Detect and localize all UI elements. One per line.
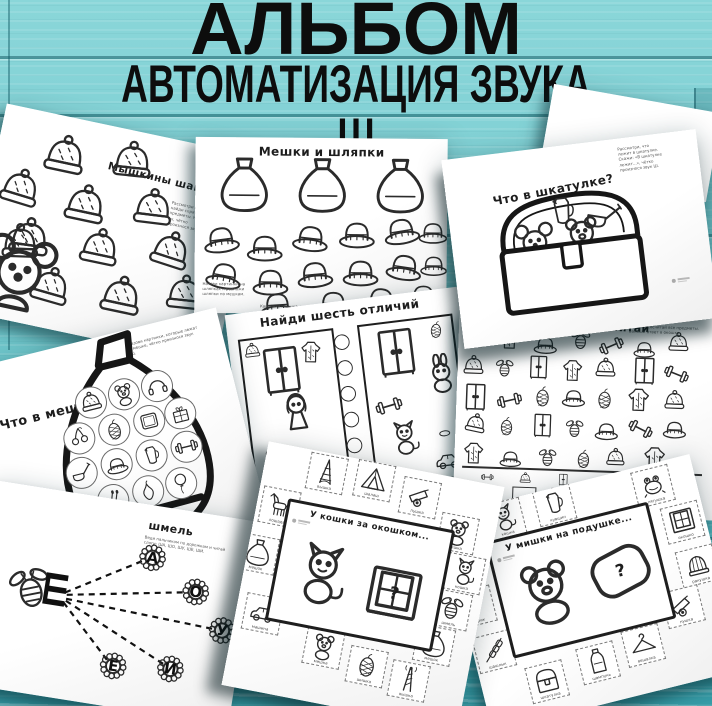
cone-icon xyxy=(100,415,129,444)
girl-icon xyxy=(272,387,321,436)
flower-letter: И xyxy=(151,649,190,688)
coat-icon xyxy=(460,440,487,467)
circle-item-jug xyxy=(132,436,171,475)
cat-icon xyxy=(385,418,425,458)
bear-illustration xyxy=(506,550,588,632)
circle-item-cone xyxy=(95,410,134,449)
frame-icon xyxy=(135,406,164,435)
bee-icon xyxy=(493,357,516,380)
bee-icon xyxy=(563,417,586,440)
beanie-icon xyxy=(93,269,150,326)
logo-icon xyxy=(292,518,297,523)
beanie-icon xyxy=(461,410,489,438)
circle-item-cherry xyxy=(60,419,99,458)
logo-icon xyxy=(672,279,676,283)
beanie-icon xyxy=(666,331,691,356)
gift-icon xyxy=(166,399,195,428)
headphones-icon xyxy=(142,372,171,401)
fedora-icon xyxy=(498,445,523,470)
coat-icon xyxy=(624,385,653,414)
publisher-logo xyxy=(292,518,310,525)
circle-item-gift xyxy=(161,394,200,433)
poster: АЛЬБОМ АВТОМАТИЗАЦИЯ ЗВУКА Ш Мышкины шап… xyxy=(0,0,712,706)
beanie-icon xyxy=(107,137,158,188)
cone-icon xyxy=(495,415,518,438)
card-shell: ракушка xyxy=(675,543,712,588)
beanie-icon xyxy=(107,137,158,188)
coat-icon xyxy=(559,357,586,384)
fedora-icon xyxy=(498,445,523,470)
beanie-icon xyxy=(72,222,127,277)
girl-icon xyxy=(272,387,321,436)
cone-icon xyxy=(530,384,555,409)
coat-icon xyxy=(298,339,324,365)
cone-icon xyxy=(592,386,617,411)
fedora-icon xyxy=(419,249,448,279)
flower-letter: А xyxy=(133,538,172,577)
flower-И: И xyxy=(151,649,190,688)
window-illustration: ? xyxy=(356,557,433,630)
beanie-icon xyxy=(93,269,150,326)
fedora-icon xyxy=(661,415,688,442)
wardrobe-icon xyxy=(525,354,552,381)
wardrobe-icon xyxy=(368,324,426,382)
fedora-icon xyxy=(661,415,688,442)
beanie-icon xyxy=(604,447,627,470)
sack-icon xyxy=(371,156,430,215)
fedora-icon xyxy=(102,450,131,479)
cone-icon xyxy=(572,448,595,471)
pillow-illustration: ? xyxy=(577,528,664,615)
dumbbell-icon xyxy=(494,385,525,416)
ladle-icon xyxy=(67,458,96,487)
card-tower: вышка xyxy=(386,659,430,703)
circle-item-fedora xyxy=(97,445,136,484)
pear-icon xyxy=(134,477,163,506)
cone-icon xyxy=(426,319,447,340)
coat-icon xyxy=(298,339,324,365)
wardrobe-icon xyxy=(529,412,556,439)
flower-letter: О xyxy=(176,573,215,612)
circle-icon xyxy=(341,410,361,430)
beanie-icon xyxy=(461,354,486,379)
circle-icon xyxy=(335,358,355,378)
cone-icon xyxy=(426,319,447,340)
flower-А: А xyxy=(133,538,172,577)
beanie-icon xyxy=(593,356,618,381)
cat-icon xyxy=(385,418,425,458)
fedora-icon xyxy=(560,383,587,410)
dumbbell-icon xyxy=(480,470,493,483)
beanie-icon xyxy=(518,472,531,485)
circle-item-frame xyxy=(130,402,169,441)
worksheet-chto-v-shkatulke: Что в шкатулке? Рассмотри, что лежит в ш… xyxy=(441,129,712,349)
worksheet-u-koshki: вышкашалашпушкалошадьмешокмашинамишкакош… xyxy=(222,441,505,706)
sack-icon xyxy=(215,155,274,214)
sack-icon xyxy=(215,155,274,214)
card-cannon: пушка xyxy=(398,476,442,520)
beanie-icon xyxy=(461,354,486,379)
fedora-icon xyxy=(337,212,377,252)
card-cone: шишка xyxy=(344,645,388,689)
dumbbell-icon xyxy=(494,385,525,416)
circle-icon xyxy=(338,384,358,404)
beanie-icon xyxy=(604,447,627,470)
dumbbell-icon xyxy=(623,411,658,446)
fedora-icon xyxy=(419,249,448,279)
sack-icon xyxy=(293,156,352,215)
fedora-icon xyxy=(560,383,587,410)
circle-icon xyxy=(338,384,358,404)
game-panel: У кошки за окошком... ? xyxy=(265,498,456,652)
wardrobe-icon xyxy=(529,412,556,439)
circle-item-dumbbell xyxy=(167,427,206,466)
worksheet-meshki-i-shlyapki: Мешки и шляпки Назови картинки на шляпка… xyxy=(194,137,448,315)
dumbbell-icon xyxy=(172,432,201,461)
instruction-text: Назови картинки на шляпках и разложи шля… xyxy=(202,281,258,297)
instruction-text: Рассмотри, что лежит в шкатулке. Скажи: … xyxy=(617,141,664,172)
coat-icon xyxy=(460,440,487,467)
card-chest: шкатулка xyxy=(524,659,570,704)
bee-icon xyxy=(493,357,516,380)
wardrobe-icon xyxy=(629,356,660,387)
logo-icon xyxy=(497,558,502,563)
open-chest-illustration xyxy=(476,175,667,329)
beanie-icon xyxy=(461,410,489,438)
panel-items xyxy=(240,330,331,341)
dumbbell-icon xyxy=(660,357,694,391)
beanie-icon xyxy=(0,221,43,267)
dumbbell-icon xyxy=(371,388,406,423)
circle-item-bear xyxy=(105,375,144,414)
cone-icon xyxy=(572,448,595,471)
bee-icon xyxy=(563,417,586,440)
beanie-icon xyxy=(662,389,687,414)
flower-letter: Е xyxy=(94,647,133,686)
wardrobe-icon xyxy=(629,356,660,387)
card-frog: лягушка xyxy=(630,464,676,509)
beanie-icon xyxy=(666,331,691,356)
cherry-icon xyxy=(65,424,94,453)
flower-О: О xyxy=(176,573,215,612)
beanie-icon xyxy=(0,221,43,267)
bee-icon xyxy=(536,446,559,469)
flower-Е: Е xyxy=(94,647,133,686)
sack-icon xyxy=(371,156,430,215)
beanie-icon xyxy=(76,388,105,417)
publisher-logo xyxy=(672,277,690,283)
card-eiffel: вышка xyxy=(305,452,349,496)
wardrobe-icon xyxy=(368,324,426,382)
wardrobe-icon xyxy=(460,382,491,413)
cone-icon xyxy=(530,384,555,409)
circle-item-ladle xyxy=(62,453,101,492)
question-mark: ? xyxy=(577,528,664,615)
panel-items xyxy=(359,316,450,327)
bee-icon xyxy=(536,446,559,469)
coat-icon xyxy=(624,385,653,414)
circle-icon xyxy=(335,358,355,378)
card-bottle: шампунь xyxy=(575,640,621,685)
fedora-icon xyxy=(337,212,377,252)
beanie-icon xyxy=(593,356,618,381)
circle-icon xyxy=(344,435,364,455)
coat-icon xyxy=(559,357,586,384)
fedora-icon xyxy=(593,416,620,443)
circle-icon xyxy=(344,435,364,455)
card-window: окошко xyxy=(660,500,706,545)
question-mark: ? xyxy=(356,557,433,630)
circle-icon xyxy=(341,410,361,430)
dumbbell-icon xyxy=(660,357,694,391)
letter-sh: Ш xyxy=(40,569,74,603)
wardrobe-icon xyxy=(460,382,491,413)
wardrobe-icon xyxy=(525,354,552,381)
jug-icon xyxy=(137,441,166,470)
circle-item-balloon xyxy=(162,464,201,503)
puck-icon xyxy=(434,422,456,444)
dumbbell-icon xyxy=(623,411,658,446)
cone-icon xyxy=(495,415,518,438)
beanie-icon xyxy=(662,389,687,414)
card-hut: шалаш xyxy=(352,459,396,503)
beanie-icon xyxy=(72,222,127,277)
cone-icon xyxy=(592,386,617,411)
circle-icon xyxy=(332,332,352,352)
circle-icon xyxy=(332,332,352,352)
fedora-icon xyxy=(417,215,448,247)
puck-icon xyxy=(434,422,456,444)
bear-icon xyxy=(109,380,138,409)
balloon-icon xyxy=(167,469,196,498)
dumbbell-icon xyxy=(371,388,406,423)
fedora-icon xyxy=(593,416,620,443)
fedora-icon xyxy=(417,215,448,247)
sack-icon xyxy=(293,156,352,215)
cat-illustration xyxy=(284,537,359,612)
